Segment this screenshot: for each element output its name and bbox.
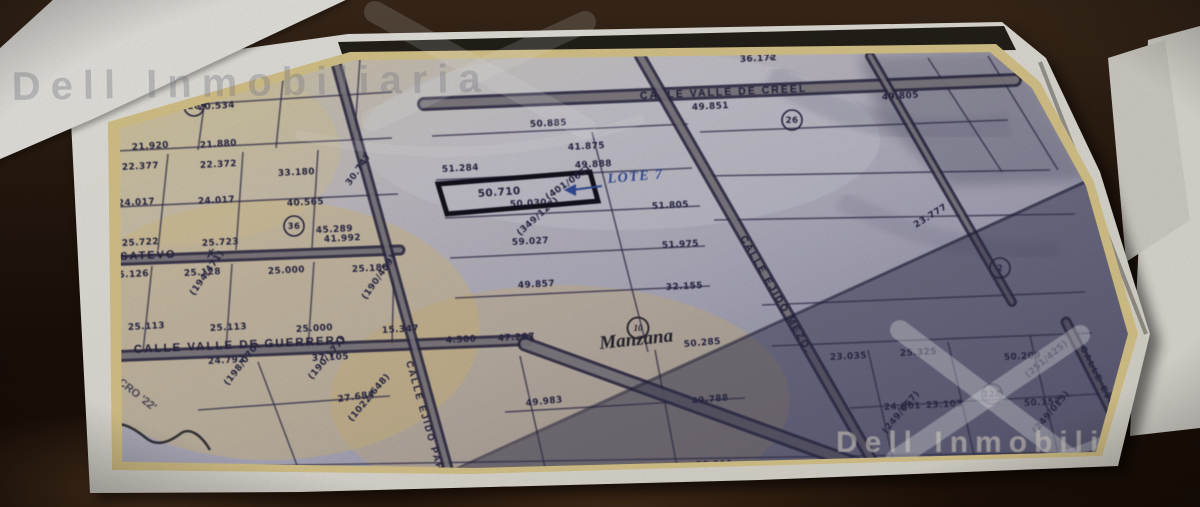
photo-of-cadastral-map-on-table: CALLE VALLE DE CREELDE SATEVOCALLE VALLE… xyxy=(0,0,1200,507)
photo-vignette xyxy=(0,0,1200,507)
cadastral-map-scene: CALLE VALLE DE CREELDE SATEVOCALLE VALLE… xyxy=(0,0,1200,507)
